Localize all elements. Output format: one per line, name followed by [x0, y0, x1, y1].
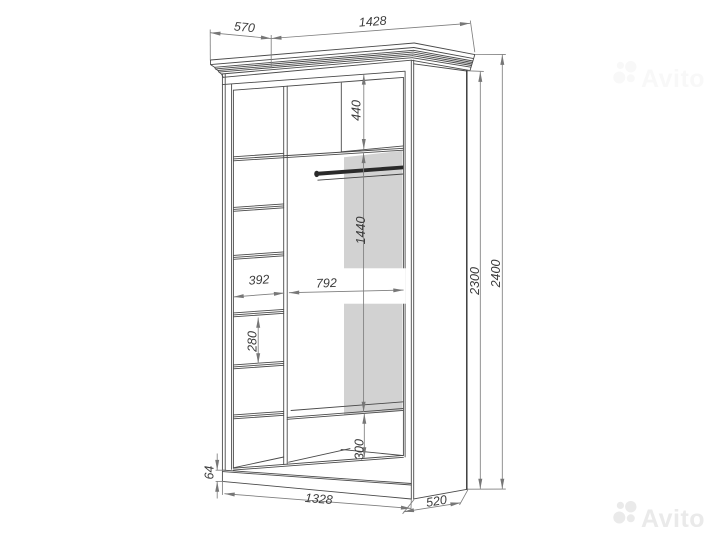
svg-text:2300: 2300	[468, 267, 482, 296]
svg-text:392: 392	[248, 272, 270, 288]
svg-text:64: 64	[203, 466, 217, 480]
svg-text:300: 300	[353, 439, 367, 460]
svg-text:570: 570	[233, 19, 255, 35]
svg-text:440: 440	[349, 100, 363, 121]
svg-text:Avito: Avito	[641, 65, 705, 93]
svg-text:1328: 1328	[304, 491, 333, 507]
svg-text:2400: 2400	[489, 260, 503, 289]
svg-text:280: 280	[245, 331, 259, 353]
svg-text:1440: 1440	[354, 217, 368, 245]
svg-text:792: 792	[316, 276, 337, 291]
svg-text:1428: 1428	[358, 14, 387, 30]
svg-text:Avito: Avito	[641, 505, 705, 533]
